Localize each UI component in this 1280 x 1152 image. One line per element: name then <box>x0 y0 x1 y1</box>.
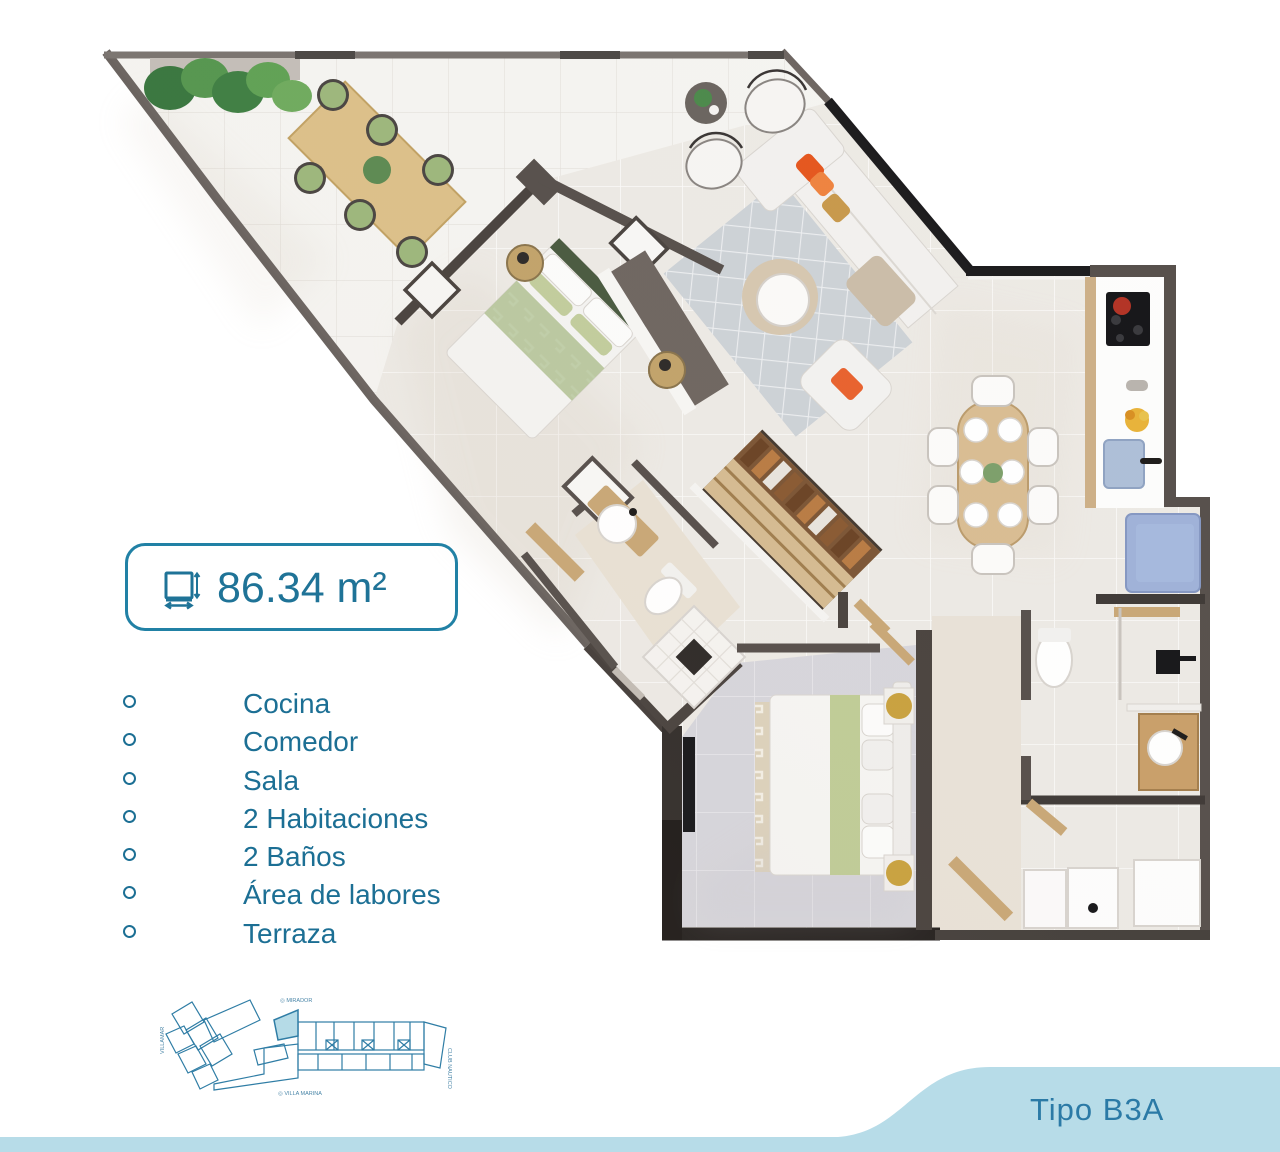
svg-text:◎ MIRADOR: ◎ MIRADOR <box>280 998 312 1004</box>
svg-text:Tipo B3A: Tipo B3A <box>1030 1092 1164 1127</box>
